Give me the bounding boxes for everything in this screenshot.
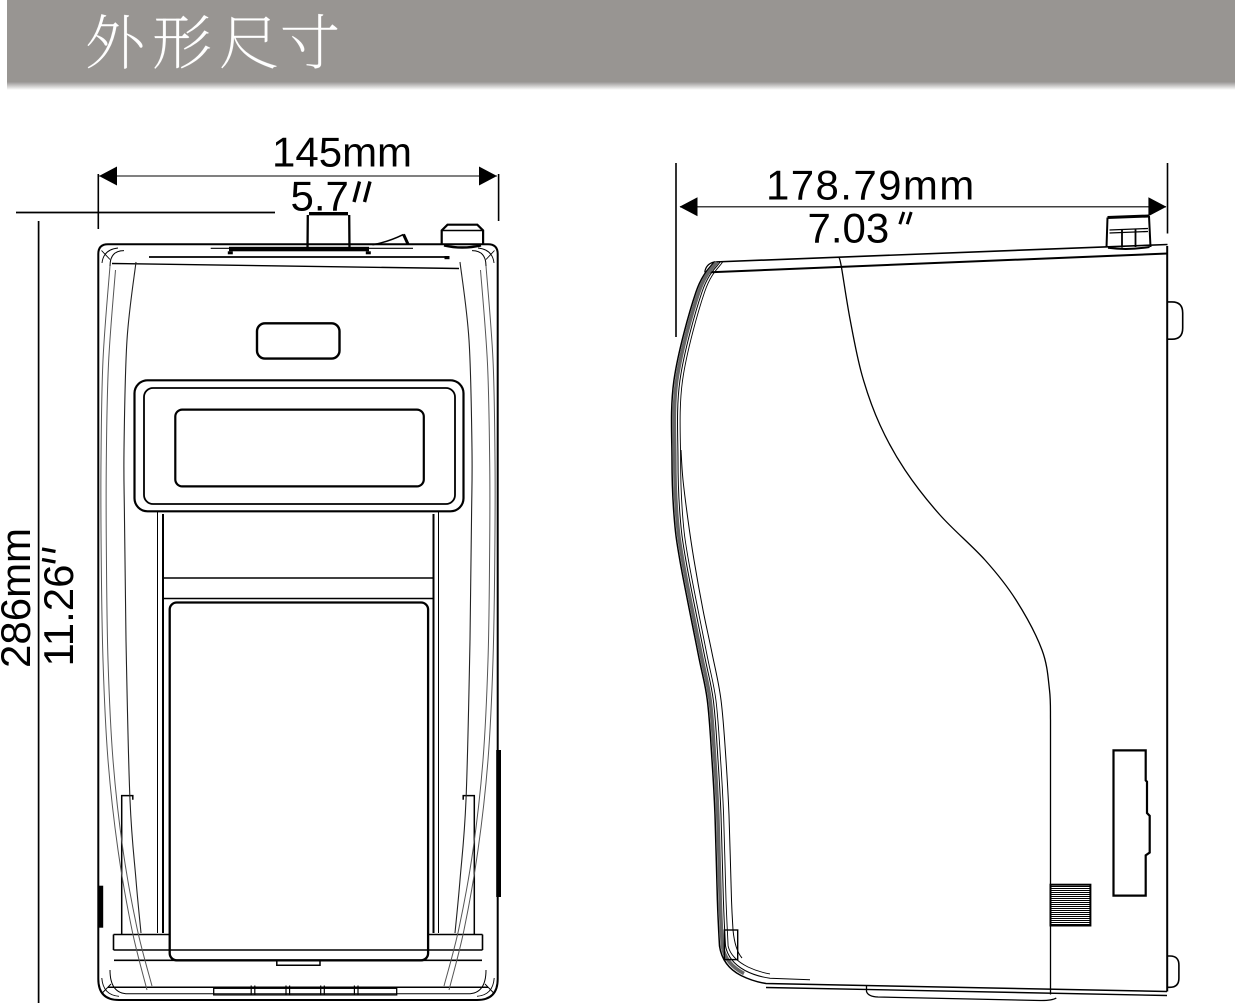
svg-text:11.26: 11.26 bbox=[35, 565, 82, 667]
svg-text:178.79mm: 178.79mm bbox=[766, 162, 976, 209]
svg-text:7.03: 7.03 bbox=[808, 204, 890, 251]
svg-text:145mm: 145mm bbox=[272, 129, 412, 176]
svg-text:286mm: 286mm bbox=[0, 528, 39, 668]
svg-text:5.7: 5.7 bbox=[291, 172, 349, 219]
